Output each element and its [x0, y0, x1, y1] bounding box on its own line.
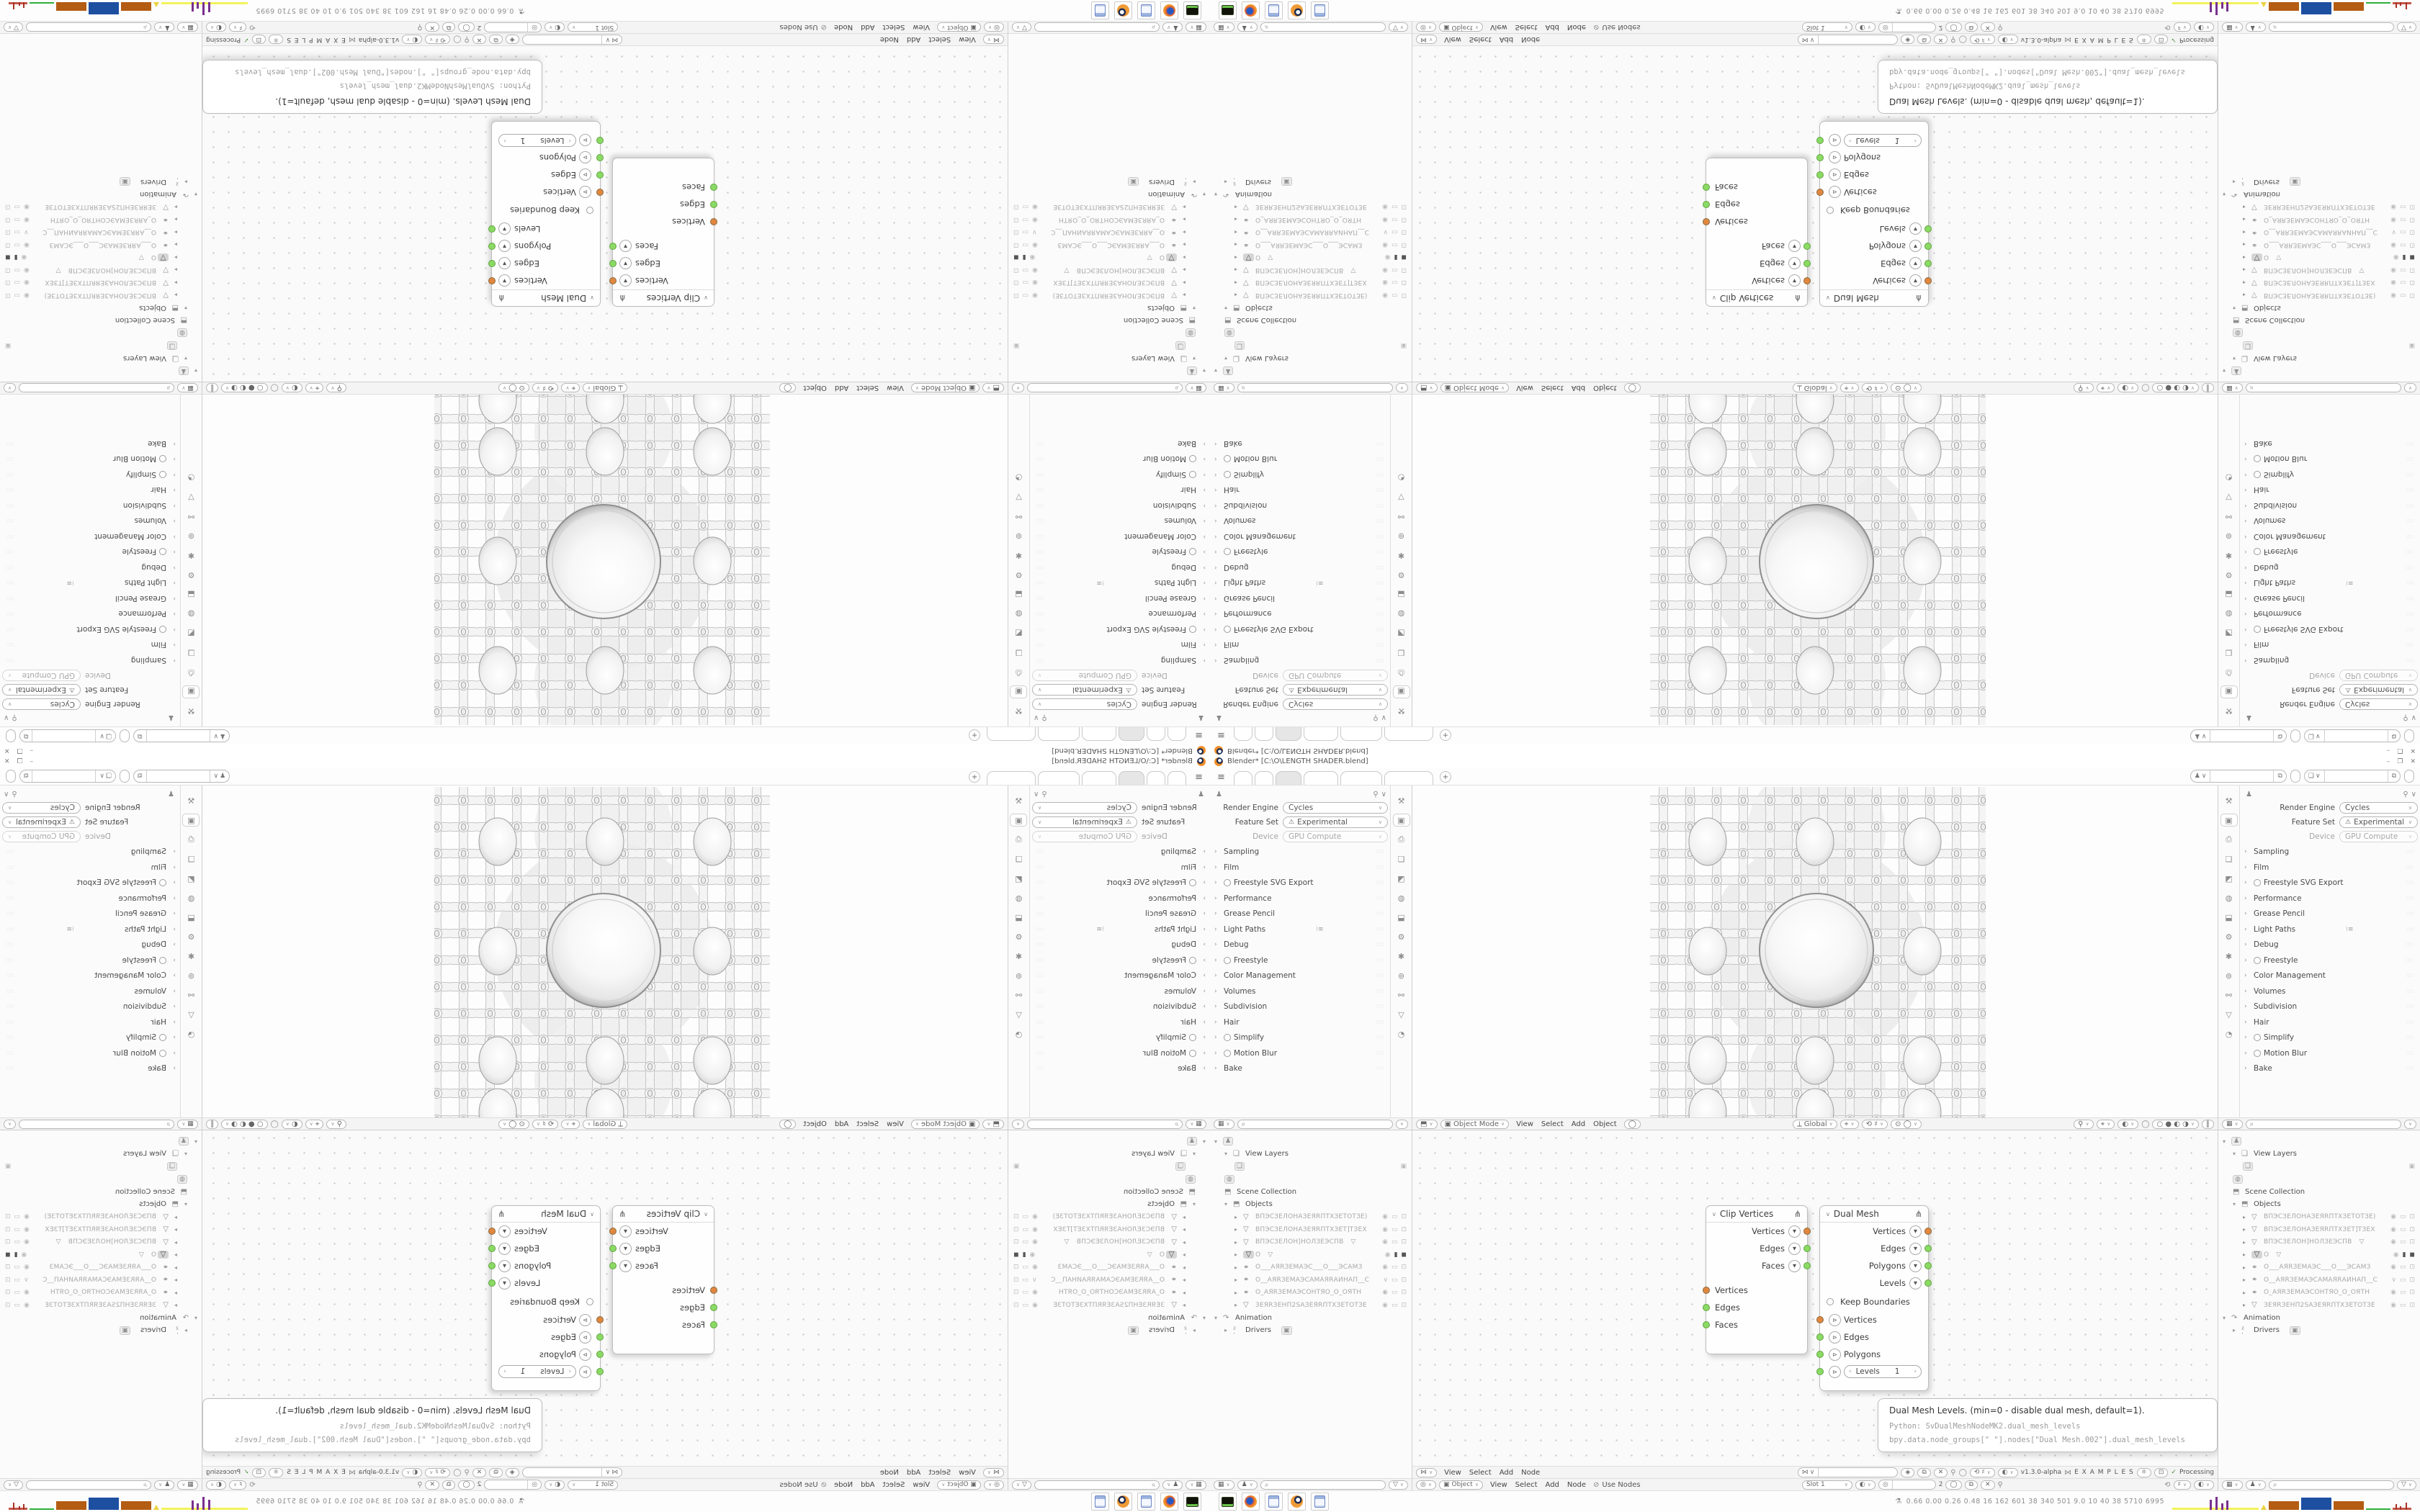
plug-icon[interactable]: ⊳	[579, 151, 591, 163]
tab-object-icon[interactable]: ⬓	[1010, 588, 1028, 601]
input-socket-vertices[interactable]	[710, 218, 717, 225]
menu-select[interactable]: Select	[928, 1469, 951, 1477]
device-select[interactable]: GPU Compute∨	[2, 831, 81, 842]
object-row[interactable]: ▸▽ВПЭСЗЕЛОНАЗЕЯRПТХЗЕТ]ТЗЕХ◉▭⊡	[1012, 276, 1206, 289]
checkbox[interactable]	[1224, 1050, 1231, 1057]
hide-icon[interactable]: ◉	[24, 1213, 30, 1220]
transform-pivot-button[interactable]: ◯	[1624, 1120, 1641, 1129]
object-row[interactable]: ▸▽ВПЭСЗЕЛОН]НОЛЗЕЭСПВ▽◉▭⊡	[1012, 1236, 1206, 1248]
tab-view-layer-icon[interactable]: ❏	[2220, 852, 2238, 865]
viewport-disable-icon[interactable]: ▭	[1023, 279, 1029, 286]
input-socket-edges[interactable]	[1703, 1304, 1710, 1311]
filter-chevron-icon[interactable]: ∨	[1381, 714, 1386, 721]
hide-icon[interactable]: ◉	[1385, 1251, 1391, 1259]
menu-view[interactable]: View	[959, 35, 976, 43]
objects-collection-row[interactable]: ▾⬒Objects	[4, 1198, 197, 1211]
hide-icon[interactable]: ◉	[2393, 1251, 2399, 1259]
menu-add[interactable]: Add	[1500, 35, 1513, 43]
output-socket-faces[interactable]	[1803, 243, 1811, 250]
search-input[interactable]: ⌕	[1027, 383, 1183, 392]
options-button[interactable]: ∨	[4, 383, 16, 392]
checkbox[interactable]	[1224, 471, 1231, 478]
scene-selector[interactable]: ♟∨ ⧉	[2190, 729, 2287, 742]
add-workspace-button[interactable]: +	[1440, 729, 1451, 741]
checkbox[interactable]	[1224, 957, 1231, 964]
viewport-disable-icon[interactable]: ▭	[1391, 1213, 1398, 1220]
section-sampling[interactable]: ›Sampling∷∷	[2244, 844, 2418, 860]
tab-output-icon[interactable]: ⎙	[1010, 666, 1028, 679]
shading-toggle[interactable]: ◐∨	[1998, 35, 2018, 44]
editor-type-button[interactable]: ⬒∨	[982, 1120, 1004, 1129]
display-mode-button[interactable]: ♟∨	[1237, 1480, 1258, 1490]
options-button[interactable]: ∨	[2404, 383, 2416, 392]
input-socket-faces[interactable]	[1703, 1321, 1710, 1328]
viewport-disable-icon[interactable]: ▭	[2400, 1302, 2406, 1309]
tab-view-layer-icon[interactable]: ❏	[1010, 852, 1028, 865]
drivers-row[interactable]: ▸²̦Drivers▣	[2223, 1324, 2416, 1337]
output-socket-edges[interactable]	[1924, 1245, 1932, 1252]
tab-constraints-icon[interactable]: ⚯	[183, 989, 200, 1002]
hide-icon[interactable]: ◉	[2390, 1238, 2396, 1246]
section-subdivision[interactable]: ›Subdivision∷∷	[2, 999, 176, 1014]
checkbox[interactable]	[159, 548, 166, 555]
object-row-selected[interactable]: ▸▽O▽◉▮◼	[1012, 251, 1206, 264]
object-row[interactable]: ▸▽ВПЭСЗЕЛОНАЗЕЯRПТХЗЕТОТЗЕ)◉▭⊡	[4, 1210, 197, 1223]
proportional-edit-button[interactable]: ⟲ ♯∨	[532, 383, 559, 392]
editor-type-button[interactable]: ▦∨	[177, 22, 198, 32]
tab-world-icon[interactable]: ◍	[2220, 891, 2238, 904]
node-canvas[interactable]: ∨Clip Vertices⋔ Vertices▼ Edges▼ Faces▼ …	[1412, 46, 2218, 382]
overlays-button[interactable]: ⌖∨	[2097, 383, 2115, 392]
tab-material-icon[interactable]: ◔	[1393, 472, 1410, 485]
section-motion-blur[interactable]: ›Motion Blur∷∷	[1214, 1045, 1388, 1061]
section-subdivision[interactable]: ›Subdivision∷∷	[1032, 498, 1206, 513]
filter-button[interactable]: ▽∨	[4, 1480, 23, 1490]
hide-icon[interactable]: ◉	[1032, 292, 1038, 299]
node-dual-mesh[interactable]: ∨Dual Mesh⋔ Vertices▼ Edges▼ Polygons▼ L…	[491, 1205, 601, 1391]
render-engine-select[interactable]: Cycles∨	[1032, 698, 1137, 710]
menu-view[interactable]: View	[959, 1469, 976, 1477]
workspace-tab[interactable]	[1384, 771, 1433, 785]
tab-data-icon[interactable]: ▽	[1010, 491, 1028, 504]
section-freestyle-svg-export[interactable]: ›Freestyle SVG Export∷∷	[2, 621, 176, 637]
gizmo-button[interactable]: ⚲∨	[2074, 383, 2093, 392]
search-input[interactable]: ⌕	[2269, 1480, 2394, 1490]
search-input[interactable]: ⌕	[19, 1120, 174, 1129]
menu-view[interactable]: View	[913, 23, 930, 31]
copy-icon[interactable]: ⧉	[2388, 730, 2400, 742]
section-freestyle[interactable]: ›Freestyle∷∷	[2, 953, 176, 968]
mode-select[interactable]: ▣ Object Mode∨	[1440, 1120, 1510, 1129]
render-disable-icon[interactable]: ⊡	[1401, 1302, 1407, 1309]
tab-render-icon[interactable]: ▣	[2220, 814, 2238, 827]
menu-node[interactable]: Node	[834, 23, 853, 31]
copy-button[interactable]: ⧉	[442, 1480, 455, 1490]
hide-icon[interactable]: ◉	[24, 203, 30, 210]
view-layer-new-button[interactable]	[6, 729, 16, 742]
pin-icon[interactable]: ⚲	[1998, 1481, 2003, 1489]
world-row[interactable]: ◍	[1012, 1173, 1206, 1186]
tab-view-layer-icon[interactable]: ❏	[183, 852, 200, 865]
section-debug[interactable]: ›Debug∷∷	[2, 937, 176, 953]
hide-icon[interactable]: ◉	[24, 241, 30, 248]
render-disable-icon[interactable]: ⊡	[2409, 241, 2415, 248]
hide-icon[interactable]: ◉	[2390, 1264, 2396, 1271]
section-light-paths[interactable]: ›Light Paths⁝≡∷∷	[1214, 922, 1388, 937]
checkbox[interactable]	[1224, 455, 1231, 462]
options-button[interactable]: ∨	[1396, 1120, 1408, 1129]
socket-menu-icon[interactable]: ▼	[498, 257, 511, 269]
minimize-button[interactable]: –	[30, 747, 34, 754]
taskbar-calculator2-icon[interactable]	[1311, 1, 1329, 19]
menu-view[interactable]: View	[1516, 384, 1533, 392]
checkbox[interactable]	[2254, 471, 2261, 478]
viewport-disable-icon[interactable]: ▭	[2400, 203, 2406, 210]
plug-icon[interactable]: ⊳	[1829, 1331, 1841, 1344]
tab-tool-icon[interactable]: ⚒	[2220, 705, 2238, 718]
plug-icon[interactable]: ⊳	[1829, 168, 1841, 181]
render-disable-icon[interactable]: ⊡	[1013, 1213, 1019, 1220]
hide-icon[interactable]: ◉	[2390, 266, 2396, 274]
tab-constraints-icon[interactable]: ⚯	[1393, 510, 1410, 523]
animation-row[interactable]: ▾↷Animation	[1012, 188, 1206, 201]
socket-menu-icon[interactable]: ▼	[619, 274, 632, 287]
hide-icon[interactable]: ◉	[1382, 1264, 1388, 1271]
objects-collection-row[interactable]: ▾⬒Objects	[1012, 1198, 1206, 1211]
copy-button[interactable]: ⧉	[1965, 1480, 1978, 1490]
filter-chevron-icon[interactable]: ∨	[4, 791, 9, 798]
device-select[interactable]: GPU Compute∨	[2, 670, 81, 681]
view-layer-name-field[interactable]	[2324, 730, 2388, 742]
workspace-tab[interactable]	[1304, 727, 1338, 741]
render-disable-icon[interactable]: ◼	[5, 253, 10, 261]
filter-chevron-icon[interactable]: ∨	[4, 714, 9, 721]
section-freestyle-svg-export[interactable]: ›Freestyle SVG Export∷∷	[1032, 621, 1206, 637]
render-engine-select[interactable]: Cycles∨	[2339, 698, 2418, 710]
hide-icon[interactable]: ◉	[1382, 279, 1388, 286]
shading-extra-icon[interactable]: ◯	[2141, 1120, 2149, 1128]
object-row[interactable]: ▸▽ЗЕЯRЗЕНП2SАЗЕЯRПТХЗЕТОТЗЕ◉▭⊡	[4, 1299, 197, 1312]
menu-view[interactable]: View	[887, 384, 904, 392]
menu-view[interactable]: View	[1444, 1469, 1461, 1477]
object-row[interactable]: ▸▽ЗЕЯRЗЕНП2SАЗЕЯRПТХЗЕТОТЗЕ◉▭⊡	[1214, 201, 1408, 214]
view-layer-row[interactable]: ❏▣	[4, 339, 197, 352]
section-freestyle[interactable]: ›Freestyle∷∷	[2, 544, 176, 560]
output-socket-vertices[interactable]	[1924, 1228, 1932, 1235]
output-socket-faces[interactable]	[609, 1262, 617, 1269]
app-menu-icon[interactable]: ≡	[1217, 772, 1225, 783]
tab-scene-icon[interactable]: ◩	[1010, 627, 1028, 640]
material-selector[interactable]: ◎	[1878, 1480, 1936, 1490]
scene-collection-row[interactable]: ⬒Scene Collection	[2223, 314, 2416, 327]
section-bake[interactable]: ›Bake∷∷	[1032, 436, 1206, 451]
input-socket-edges[interactable]	[596, 1333, 604, 1341]
view-layer-selector[interactable]: ❏∨ ⧉	[19, 770, 116, 783]
view-layer-selector[interactable]: ❏∨ ⧉	[2304, 729, 2401, 742]
viewport-disable-icon[interactable]: ▭	[2400, 1289, 2406, 1296]
section-hair[interactable]: ›Hair∷∷	[1214, 1014, 1388, 1030]
filter-button[interactable]: ▽∨	[1389, 22, 1408, 32]
snap-button[interactable]: ♯∨	[2174, 22, 2191, 32]
tab-scene-icon[interactable]: ◩	[1393, 872, 1410, 885]
tab-particles-icon[interactable]: ✱	[1393, 549, 1410, 562]
workspace-tab[interactable]	[1304, 771, 1338, 785]
overlay-toggle[interactable]: ⟲ ♯∨	[425, 35, 450, 44]
keep-boundaries-checkbox[interactable]	[1827, 207, 1834, 214]
outliner-root[interactable]: ▾♟̇	[2223, 364, 2416, 377]
material-slot-select[interactable]: Slot 1∨	[1802, 22, 1852, 32]
scene-selector[interactable]: ♟∨ ⧉	[133, 770, 230, 783]
shading-toggle[interactable]: ◐∨	[402, 35, 422, 44]
object-row[interactable]: ▸▽ВПЭСЗЕЛОНАЗЕЯRПТХЗЕТОТЗЕ)◉▭⊡	[2223, 1210, 2416, 1223]
refresh-icon[interactable]: ⟲	[249, 23, 255, 31]
outliner-root[interactable]: ▾♟̇	[4, 1135, 197, 1148]
pin-icon[interactable]: ⚲	[1950, 1469, 1955, 1477]
filter-chevron-icon[interactable]: ∨	[1034, 714, 1039, 721]
device-select[interactable]: GPU Compute∨	[1283, 831, 1388, 842]
shield-button[interactable]: ◯	[458, 22, 474, 32]
tab-modifiers-icon[interactable]: ⚙	[1393, 930, 1410, 943]
viewport-disable-icon[interactable]: ▭	[1391, 1302, 1398, 1309]
checkbox[interactable]	[159, 626, 166, 633]
workspace-tab-active[interactable]	[1119, 727, 1144, 741]
taskbar-firefox-icon[interactable]	[1242, 1, 1260, 19]
display-mode-button[interactable]: ♟∨	[154, 22, 174, 32]
object-row[interactable]: ▸▽ВПЭСЗЕЛОНАЗЕЯRПТХЗЕТОТЗЕ)◉▭⊡	[2223, 289, 2416, 302]
render-disable-icon[interactable]: ⊡	[1013, 279, 1019, 286]
section-freestyle[interactable]: ›Freestyle∷∷	[2244, 544, 2418, 560]
animation-row[interactable]: ▾↷Animation	[1214, 188, 1408, 201]
hide-icon[interactable]: ◉	[2390, 1289, 2396, 1296]
object-row[interactable]: ▸⚭O_АЯRЗЕМАЭСОНТЯО_О_ОЯТН◉▭⊡	[2223, 1286, 2416, 1299]
hide-icon[interactable]: ◉	[1032, 1238, 1038, 1246]
section-simplify[interactable]: ›Simplify∷∷	[2, 1030, 176, 1045]
taskbar-firefox-icon[interactable]	[1242, 1493, 1260, 1511]
checkbox[interactable]	[1224, 548, 1231, 555]
tab-modifiers-icon[interactable]: ⚙	[183, 930, 200, 943]
output-socket-levels[interactable]	[1924, 225, 1932, 233]
feature-set-select[interactable]: ⚠Experimental∨	[1032, 816, 1137, 828]
tab-modifiers-icon[interactable]: ⚙	[2220, 930, 2238, 943]
node-dual-mesh[interactable]: ∨Dual Mesh⋔ Vertices▼ Edges▼ Polygons▼ L…	[1819, 121, 1929, 307]
plug-icon[interactable]: ⊳	[579, 1349, 591, 1361]
socket-menu-icon[interactable]: ▼	[1788, 1260, 1801, 1272]
object-row[interactable]: ▸▽ВПЭСЗЕЛОНАЗЕЯRПТХЗЕТ]ТЗЕХ◉▭⊡	[4, 1223, 197, 1236]
output-socket-polygons[interactable]	[1924, 243, 1932, 250]
socket-menu-icon[interactable]: ▼	[498, 240, 511, 252]
blank-toggle[interactable]: ◯	[1959, 35, 1967, 43]
workspace-tab[interactable]	[1038, 727, 1080, 741]
socket-menu-icon[interactable]: ▼	[1909, 1260, 1922, 1272]
section-motion-blur[interactable]: ›Motion Blur∷∷	[2244, 1045, 2418, 1061]
render-disable-icon[interactable]: ⊡	[5, 1238, 11, 1246]
falloff-button[interactable]: ⊙ ◯∨	[498, 1120, 529, 1129]
object-row[interactable]: ▸▽ВПЭСЗЕЛОНАЗЕЯRПТХЗЕТ]ТЗЕХ◉▭⊡	[1214, 276, 1408, 289]
app-menu-icon[interactable]: ≡	[1217, 729, 1225, 740]
tab-data-icon[interactable]: ▽	[1010, 1008, 1028, 1021]
taskbar-terminal-icon[interactable]	[1183, 1493, 1201, 1511]
section-color-management[interactable]: ›Color Management∷∷	[2, 968, 176, 984]
view-layer-new-button[interactable]	[2404, 729, 2414, 742]
viewport-disable-icon[interactable]: ▮	[14, 1251, 17, 1259]
section-film[interactable]: ›Film∷∷	[2244, 860, 2418, 876]
render-disable-icon[interactable]: ⊡	[2409, 266, 2415, 274]
checkbox[interactable]	[2254, 626, 2261, 633]
tab-physics-icon[interactable]: ⊚	[1010, 969, 1028, 982]
add-workspace-button[interactable]: +	[1440, 771, 1451, 783]
search-input[interactable]: ⌕	[26, 1480, 151, 1490]
socket-menu-icon[interactable]: ▼	[619, 240, 632, 252]
shading-toggle[interactable]: ◐∨	[402, 1468, 422, 1477]
viewport-disable-icon[interactable]: ▭	[14, 266, 21, 274]
object-row[interactable]: ▸▽ЗЕЯRЗЕНП2SАЗЕЯRПТХЗЕТОТЗЕ◉▭⊡	[1012, 1299, 1206, 1312]
socket-menu-icon[interactable]: ▼	[1909, 1225, 1922, 1238]
socket-menu-icon[interactable]: ▼	[1909, 1243, 1922, 1255]
maximize-button[interactable]: ❐	[17, 758, 23, 765]
minimize-button[interactable]: –	[2387, 747, 2390, 754]
section-hair[interactable]: ›Hair∷∷	[2244, 482, 2418, 498]
checkbox[interactable]	[1189, 879, 1196, 886]
tab-render-icon[interactable]: ▣	[1010, 814, 1028, 827]
render-disable-icon[interactable]: ⊡	[2409, 1264, 2415, 1271]
orientation-select[interactable]: ⟂ Global∨	[1793, 383, 1837, 392]
tab-particles-icon[interactable]: ✱	[183, 950, 200, 963]
section-light-paths[interactable]: ›Light Paths⁝≡∷∷	[2, 922, 176, 937]
material-slot-select[interactable]: Slot 1∨	[568, 1480, 618, 1490]
device-select[interactable]: GPU Compute∨	[2339, 831, 2418, 842]
section-film[interactable]: ›Film∷∷	[2244, 637, 2418, 653]
filter-chevron-icon[interactable]: ∨	[1381, 791, 1386, 798]
section-film[interactable]: ›Film∷∷	[1214, 637, 1388, 653]
input-socket-levels[interactable]	[596, 1368, 604, 1375]
hide-icon[interactable]: ◉	[1032, 203, 1038, 210]
editor-type-button[interactable]: ▦∨	[1186, 1120, 1206, 1129]
render-disable-icon[interactable]: ⊡	[1401, 1289, 1407, 1296]
material-name-field[interactable]	[1892, 23, 1935, 32]
menu-select[interactable]: Select	[1469, 35, 1492, 43]
transform-pivot-button[interactable]: ◯	[1624, 383, 1641, 392]
tab-tool-icon[interactable]: ⚒	[183, 705, 200, 718]
material-preview-button[interactable]: ◐∨	[1855, 22, 1875, 32]
scene-collection-row[interactable]: ⬒Scene Collection	[1214, 314, 1408, 327]
pin-icon[interactable]: ⚲	[464, 1469, 469, 1477]
section-grease-pencil[interactable]: ›Grease Pencil∷∷	[2244, 590, 2418, 606]
render-engine-select[interactable]: Cycles∨	[1032, 802, 1137, 814]
output-socket-levels[interactable]	[488, 225, 496, 233]
shader-type-select[interactable]: ▣ Object∨	[1439, 1480, 1483, 1490]
render-disable-icon[interactable]: ⊡	[5, 216, 11, 223]
section-volumes[interactable]: ›Volumes∷∷	[2, 513, 176, 529]
node-tree-selector[interactable]: ⋈∨	[1798, 35, 1899, 45]
shading-mode-switch[interactable]: ○ ● ◐ ◑∨	[2152, 383, 2199, 392]
section-grease-pencil[interactable]: ›Grease Pencil∷∷	[2244, 906, 2418, 922]
camera-icon[interactable]: ▣	[1013, 342, 1020, 349]
workspace-tab[interactable]	[1384, 727, 1433, 741]
pin-icon[interactable]: ⚲	[1373, 714, 1378, 721]
sverchok-node-editor[interactable]: ∨Clip Vertices⋔ Vertices▼ Edges▼ Faces▼ …	[202, 22, 1008, 382]
material-preview-button[interactable]: ◐∨	[544, 22, 565, 32]
scene-selector[interactable]: ♟∨ ⧉	[133, 729, 230, 742]
checkbox[interactable]	[159, 879, 166, 886]
checkbox[interactable]	[1224, 626, 1231, 633]
section-performance[interactable]: ›Performance∷∷	[1214, 606, 1388, 622]
camera-icon[interactable]: ▣	[1013, 1163, 1020, 1170]
world-row[interactable]: ◍	[2223, 1173, 2416, 1186]
close-button[interactable]: ✕	[2410, 758, 2416, 765]
scene-selector[interactable]: ♟∨ ⧉	[2190, 770, 2287, 783]
section-light-paths[interactable]: ›Light Paths⁝≡∷∷	[2244, 575, 2418, 591]
molecule-button[interactable]: ⚛	[2137, 1468, 2151, 1477]
section-film[interactable]: ›Film∷∷	[1214, 860, 1388, 876]
workspace-tab[interactable]	[1234, 727, 1252, 741]
input-socket-vertices[interactable]	[1703, 1287, 1710, 1294]
search-input[interactable]: ⌕	[19, 383, 174, 392]
viewport-disable-icon[interactable]: ▭	[14, 203, 21, 210]
tab-world-icon[interactable]: ◍	[183, 891, 200, 904]
tab-world-icon[interactable]: ◍	[183, 608, 200, 621]
snap-target-button[interactable]: ⌖∨	[1840, 1120, 1859, 1129]
tab-constraints-icon[interactable]: ⚯	[183, 510, 200, 523]
editor-type-button[interactable]: ▦∨	[1186, 1480, 1206, 1490]
node-canvas[interactable]: ∨Clip Vertices⋔ Vertices▼ Edges▼ Faces▼ …	[1412, 1130, 2218, 1466]
viewport-disable-icon[interactable]: ▭	[1023, 1226, 1029, 1233]
snap-button[interactable]: ♯∨	[229, 22, 246, 32]
tab-tool-icon[interactable]: ⚒	[2220, 794, 2238, 807]
render-disable-icon[interactable]: ⊡	[1013, 1302, 1019, 1309]
section-bake[interactable]: ›Bake∷∷	[2244, 1061, 2418, 1076]
render-disable-icon[interactable]: ⊡	[1401, 1226, 1407, 1233]
scene-collection-row[interactable]: ⬒Scene Collection	[1214, 1185, 1408, 1198]
workspace-tab[interactable]	[1234, 771, 1252, 785]
tab-view-layer-icon[interactable]: ❏	[183, 647, 200, 660]
scene-name-field[interactable]	[2210, 730, 2273, 742]
hide-icon[interactable]: ◉	[1032, 266, 1038, 274]
levels-number-field[interactable]: ‹Levels1›	[1844, 134, 1922, 147]
camera-icon[interactable]: ▣	[1400, 1163, 1407, 1170]
object-row[interactable]: ▸⚭O___АЯRЗЕМАЭС___O___ЭСАМЗ◉▭⊡	[4, 238, 197, 251]
editor-type-button[interactable]: ⋈∨	[1416, 35, 1437, 44]
plug-icon[interactable]: ⊳	[1829, 1349, 1841, 1361]
output-socket-vertices[interactable]	[609, 277, 617, 284]
view-layer-row[interactable]: ❏▣	[1012, 1160, 1206, 1173]
node-clip-vertices[interactable]: ∨Clip Vertices⋔ Vertices▼ Edges▼ Faces▼ …	[612, 1205, 714, 1354]
socket-menu-icon[interactable]: ▼	[1788, 240, 1801, 252]
camera-icon[interactable]: ▣	[5, 342, 12, 349]
overlays-button[interactable]: ⌖∨	[305, 383, 324, 392]
section-motion-blur[interactable]: ›Motion Blur∷∷	[1032, 451, 1206, 467]
menu-add[interactable]: Add	[1572, 1120, 1585, 1128]
pin-icon[interactable]: ⚲	[417, 23, 422, 31]
section-color-management[interactable]: ›Color Management∷∷	[2244, 528, 2418, 544]
hide-icon[interactable]: ◉	[2393, 253, 2399, 261]
section-volumes[interactable]: ›Volumes∷∷	[2244, 513, 2418, 529]
section-freestyle-svg-export[interactable]: ›Freestyle SVG Export∷∷	[2244, 621, 2418, 637]
copy-button[interactable]: ⧉	[442, 22, 455, 32]
pin-icon[interactable]: ⚲	[1041, 791, 1047, 798]
material-users-count[interactable]: 2	[478, 24, 482, 31]
tab-constraints-icon[interactable]: ⚯	[2220, 510, 2238, 523]
viewport-disable-icon[interactable]: ▭	[1023, 1213, 1029, 1220]
input-socket-faces[interactable]	[1703, 184, 1710, 191]
menu-add[interactable]: Add	[907, 35, 920, 43]
tab-view-layer-icon[interactable]: ❏	[1393, 647, 1410, 660]
section-volumes[interactable]: ›Volumes∷∷	[2244, 984, 2418, 999]
section-film[interactable]: ›Film∷∷	[1032, 637, 1206, 653]
taskbar-terminal-icon[interactable]	[1219, 1493, 1237, 1511]
section-sampling[interactable]: ›Sampling∷∷	[1214, 652, 1388, 668]
proportional-edit-button[interactable]: ⟲ ♯∨	[532, 1120, 559, 1129]
pin-icon[interactable]: ⚲	[12, 791, 17, 798]
